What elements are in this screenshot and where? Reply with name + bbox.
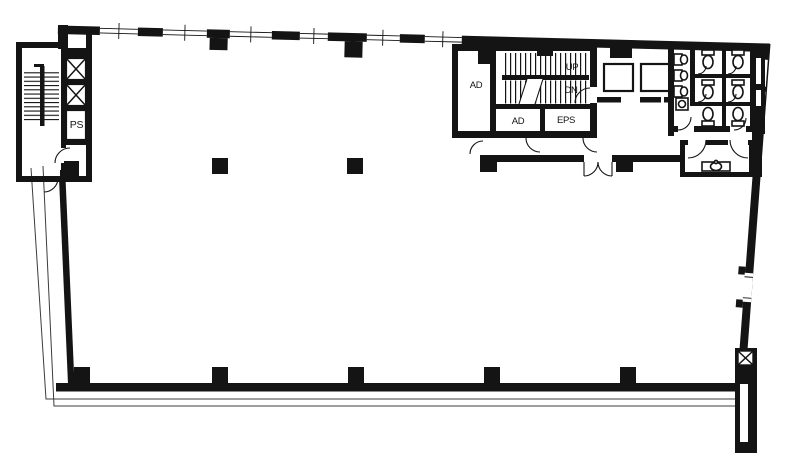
door-arc xyxy=(678,117,691,130)
shaft-x-icon xyxy=(738,351,753,365)
door-arc xyxy=(583,138,597,152)
floor-plan-svg: PS UP DN AD AD EPS xyxy=(0,0,787,465)
elevator-shaft-icon xyxy=(66,58,86,80)
door-arc xyxy=(688,140,706,158)
exterior-wall-bottom xyxy=(56,383,741,392)
column xyxy=(484,367,500,383)
label-up: UP xyxy=(566,62,579,73)
sink-icon xyxy=(676,98,688,110)
door-arc xyxy=(55,148,70,163)
label-dn: DN xyxy=(564,85,578,96)
label-eps: EPS xyxy=(557,115,575,126)
column xyxy=(344,41,362,57)
column xyxy=(212,158,228,174)
central-stair-block: UP DN AD AD EPS xyxy=(452,38,597,152)
column xyxy=(620,367,636,383)
column xyxy=(74,367,90,383)
column xyxy=(616,155,633,172)
sink-icon xyxy=(702,160,730,171)
elevator-cab xyxy=(641,64,670,91)
door-arc xyxy=(730,140,748,158)
elevator-machine-room xyxy=(597,42,674,136)
label-ad-west: AD xyxy=(470,80,483,91)
column xyxy=(480,155,497,172)
west-stair-block: PS xyxy=(16,25,92,192)
door-arc xyxy=(470,141,483,154)
column xyxy=(347,158,363,174)
washroom xyxy=(680,132,762,177)
label-ps: PS xyxy=(70,119,84,131)
corridor-double-door xyxy=(584,162,612,176)
door-arc xyxy=(526,138,540,152)
corridor xyxy=(470,141,685,176)
southeast-shaft xyxy=(735,348,757,453)
toilet-area xyxy=(668,46,765,134)
urinal-icon xyxy=(674,54,688,97)
exterior-wall-left xyxy=(59,178,75,388)
column xyxy=(64,161,79,176)
floor-plan-image: PS UP DN AD AD EPS xyxy=(0,0,787,465)
column xyxy=(209,38,227,50)
label-ad-south: AD xyxy=(512,116,525,127)
exterior-wall-top xyxy=(57,22,769,69)
site-boundary-line xyxy=(31,166,748,406)
column xyxy=(212,367,228,383)
pipe-shaft-room: PS xyxy=(66,110,86,140)
elevator-cab xyxy=(604,64,633,91)
column xyxy=(348,367,364,383)
columns xyxy=(74,158,636,383)
west-staircase xyxy=(24,64,59,126)
elevator-shaft-icon xyxy=(66,84,86,106)
